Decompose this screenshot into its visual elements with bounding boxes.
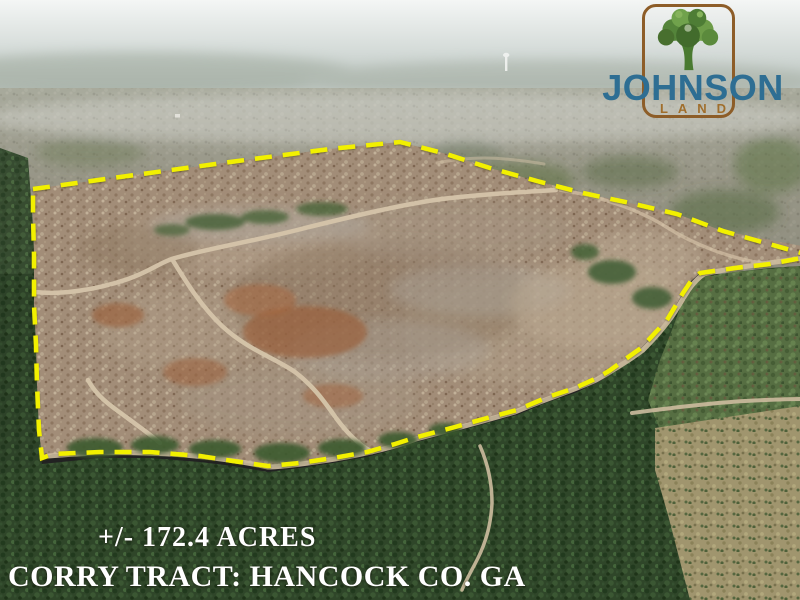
aerial-photo (0, 0, 800, 600)
tract-label: CORRY TRACT: HANCOCK CO. GA (8, 560, 526, 594)
listing-image: JOHNSON LAND +/- 172.4 ACRES CORRY TRACT… (0, 0, 800, 600)
acreage-label: +/- 172.4 ACRES (98, 522, 316, 554)
small-building (175, 114, 180, 118)
